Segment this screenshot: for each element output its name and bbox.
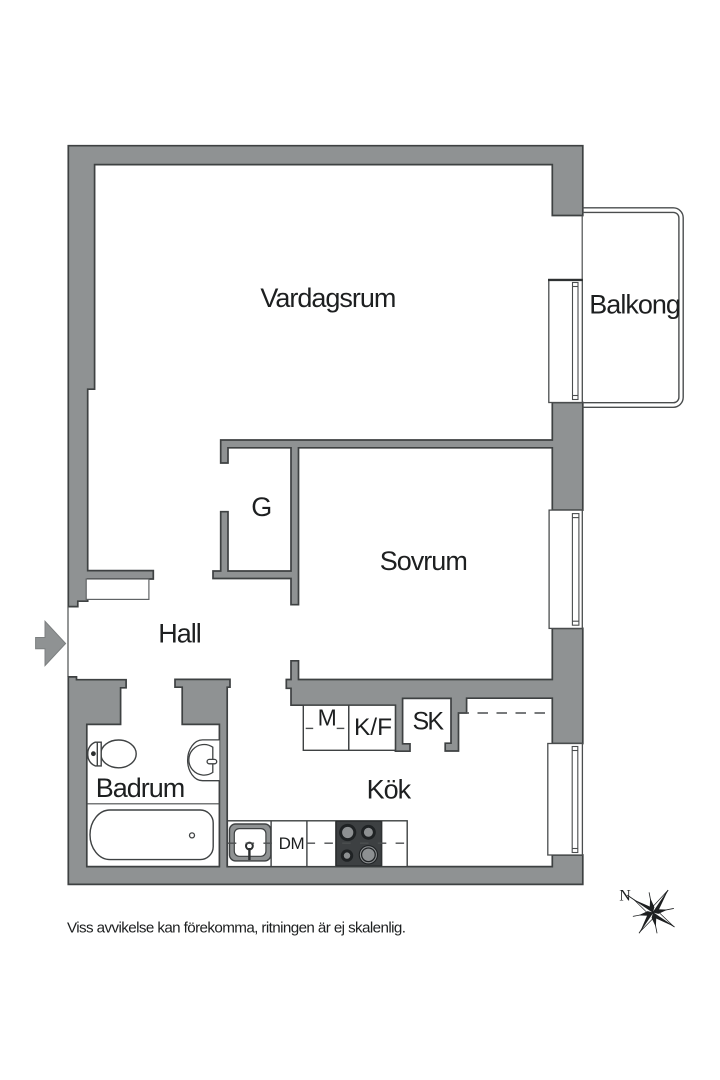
svg-text:K/F: K/F bbox=[354, 714, 392, 741]
svg-text:Hall: Hall bbox=[158, 618, 201, 648]
svg-text:SK: SK bbox=[413, 708, 445, 736]
svg-text:Sovrum: Sovrum bbox=[380, 546, 467, 576]
svg-text:Vardagsrum: Vardagsrum bbox=[260, 283, 395, 313]
svg-text:G: G bbox=[251, 492, 271, 522]
svg-text:Badrum: Badrum bbox=[96, 773, 185, 803]
svg-text:Balkong: Balkong bbox=[589, 289, 680, 319]
svg-text:Kök: Kök bbox=[367, 774, 412, 804]
svg-text:M: M bbox=[318, 705, 337, 731]
svg-text:Viss avvikelse kan förekomma,: Viss avvikelse kan förekomma, ritningen … bbox=[67, 920, 405, 937]
svg-text:DM: DM bbox=[279, 834, 305, 853]
svg-text:N: N bbox=[619, 888, 631, 905]
